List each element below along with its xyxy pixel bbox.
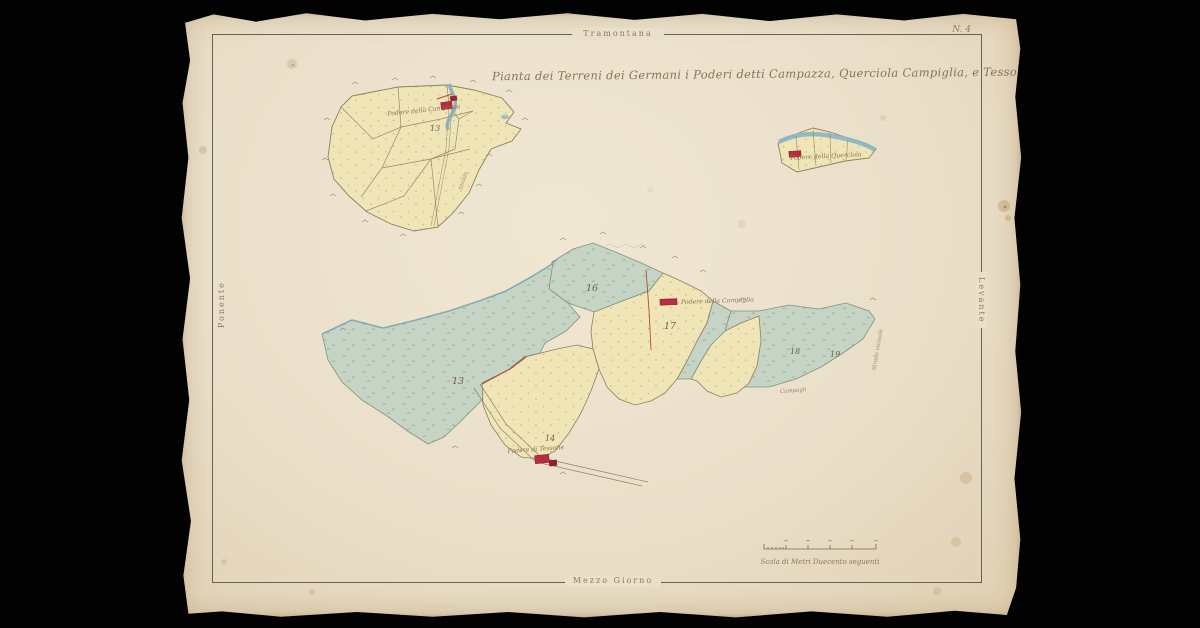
parcel-number-right19: 19 <box>830 350 840 359</box>
scale-tick-numerals <box>785 540 878 541</box>
annotation-campagli: Campagli <box>780 387 807 395</box>
annotation-road-right: Strada vicinale <box>871 328 884 371</box>
building-tessone-annex <box>549 460 558 467</box>
map-photo-background: Tramontana Mezzo Giorno Ponente Levante … <box>0 0 1200 628</box>
pond <box>501 115 509 119</box>
parcel-number-ul13: 13 <box>430 124 440 133</box>
building-campiglia <box>660 299 677 306</box>
parcel-number-center17: 17 <box>664 321 677 332</box>
building-campazza-annex <box>450 95 458 101</box>
scale-bar <box>764 540 878 549</box>
cluster-querciola: Podere della Querciola <box>778 128 876 172</box>
cluster-campiglia-tessone: Podere della Campiglia Podere di Tessone… <box>322 232 885 486</box>
parcel-number-right18: 18 <box>790 347 800 356</box>
parcel-number-tessone14: 14 <box>545 434 555 443</box>
cluster-campazza: Podere della Campazza 13 Strada <box>322 76 528 236</box>
building-tessone-main <box>535 454 550 463</box>
map-drawing: Podere della Campazza 13 Strada Pode <box>0 0 1200 628</box>
parcel-number-wood13: 13 <box>452 376 464 387</box>
scale-caption: Scala di Metri Duecento seguenti <box>761 558 880 566</box>
illegible-script-squiggle <box>606 245 646 248</box>
parcel-number-wood16: 16 <box>586 283 598 294</box>
